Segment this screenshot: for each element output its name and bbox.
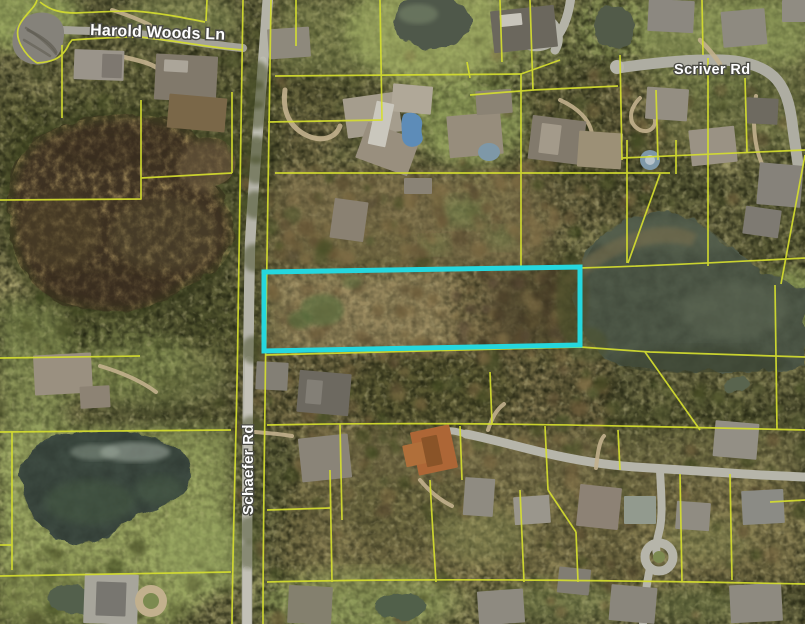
svg-text:Schaefer Rd: Schaefer Rd — [240, 424, 257, 515]
svg-text:Scriver Rd: Scriver Rd — [674, 62, 751, 78]
